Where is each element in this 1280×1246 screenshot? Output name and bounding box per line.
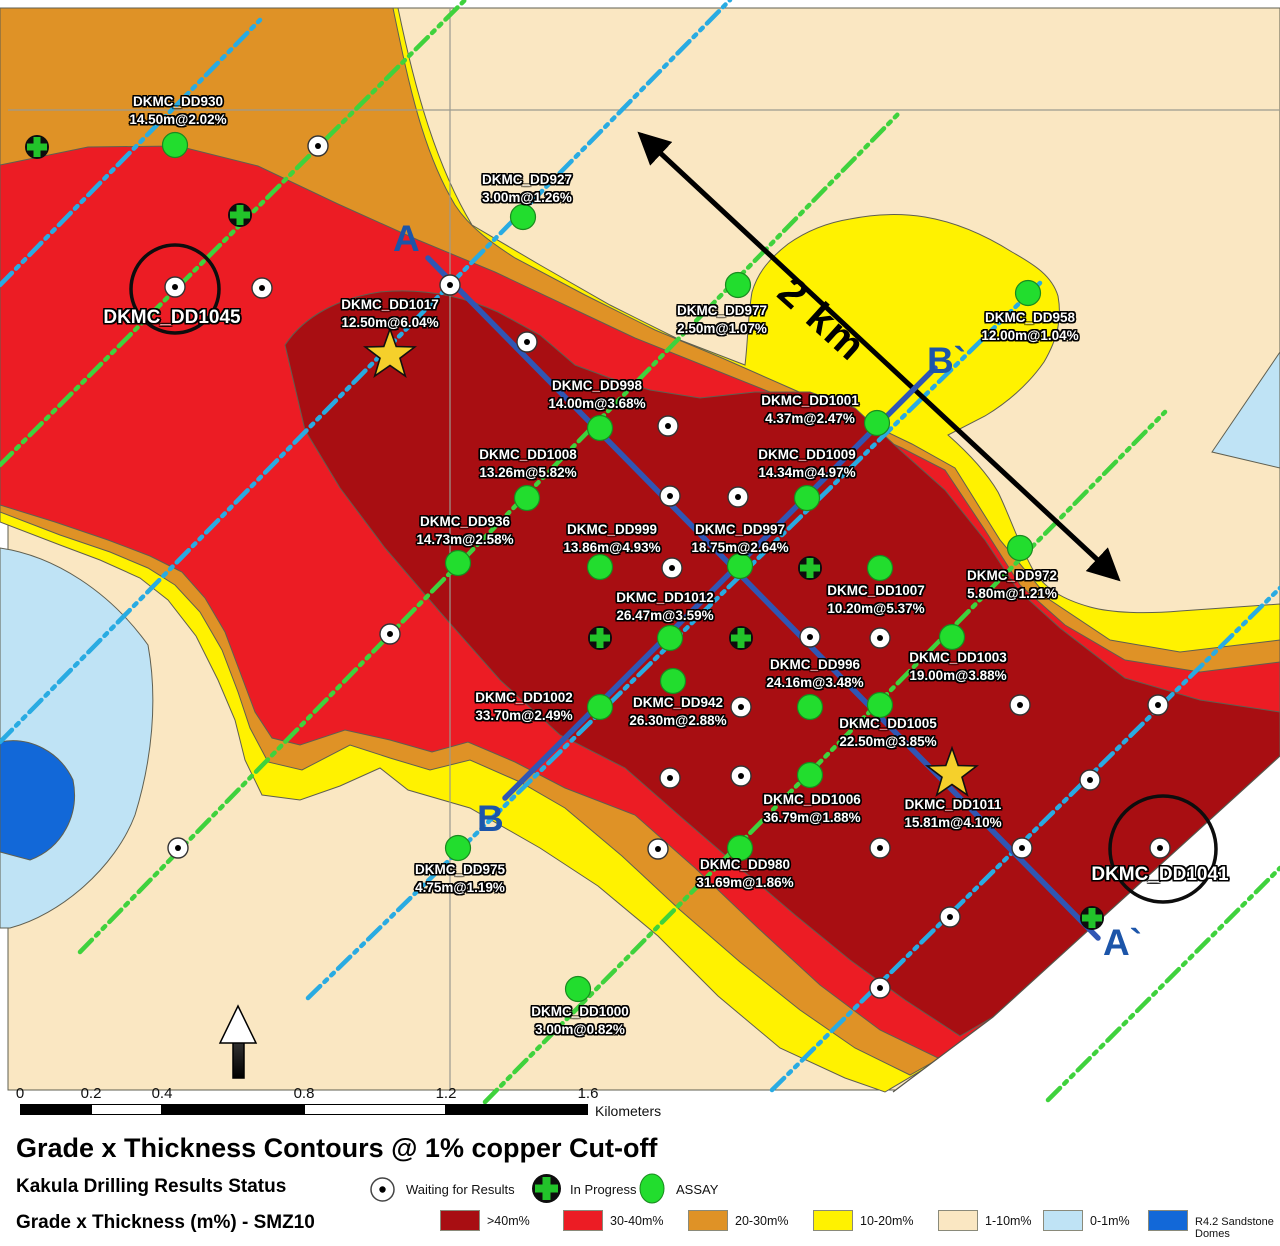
legend-gt-label: >40m% bbox=[487, 1214, 530, 1228]
hole-label: DKMC_DD99913.86m@4.93% bbox=[563, 521, 660, 556]
hole-label: DKMC_DD100319.00m@3.88% bbox=[909, 649, 1007, 684]
assay-circle bbox=[868, 556, 893, 581]
legend-gt-label: 1-10m% bbox=[985, 1214, 1032, 1228]
legend-gt-label: 30-40m% bbox=[610, 1214, 664, 1228]
scale-tick: 0 bbox=[16, 1085, 24, 1102]
assay-circle bbox=[588, 416, 613, 441]
in-progress-cross bbox=[228, 203, 252, 227]
legend-status-heading: Kakula Drilling Results Status bbox=[16, 1176, 286, 1198]
hole-label: DKMC_DD100233.70m@2.49% bbox=[475, 689, 573, 724]
hole-label: DKMC_DD9772.50m@1.07% bbox=[677, 302, 767, 337]
hole-label: DKMC_DD1041 bbox=[1091, 863, 1228, 888]
hole-label: DKMC_DD99624.16m@3.48% bbox=[766, 656, 863, 691]
hole-label: DKMC_DD100710.20m@5.37% bbox=[827, 582, 925, 617]
swatch-30-40 bbox=[563, 1210, 603, 1231]
hole-label: DKMC_DD94226.30m@2.88% bbox=[629, 694, 726, 729]
in-progress-cross bbox=[798, 556, 822, 580]
legend-gt-heading: Grade x Thickness (m%) - SMZ10 bbox=[16, 1212, 315, 1234]
legend-gt-label: 0-1m% bbox=[1090, 1214, 1130, 1228]
swatch-over-40 bbox=[440, 1210, 480, 1231]
legend-gt-label: R4.2 Sandstone Domes bbox=[1195, 1216, 1280, 1240]
page-title: Grade x Thickness Contours @ 1% copper C… bbox=[16, 1133, 657, 1164]
hole-label: DKMC_DD10003.00m@0.82% bbox=[531, 1003, 629, 1038]
hole-label: DKMC_DD101115.81m@4.10% bbox=[904, 796, 1001, 831]
scale-tick: 0.8 bbox=[294, 1085, 315, 1102]
assay-circle bbox=[726, 273, 751, 298]
hole-label: DKMC_DD100813.26m@5.82% bbox=[479, 446, 577, 481]
assay-circle bbox=[446, 836, 471, 861]
in-progress-cross bbox=[588, 626, 612, 650]
legend-gt-label: 20-30m% bbox=[735, 1214, 789, 1228]
assay-circle bbox=[511, 205, 536, 230]
assay-circle bbox=[1008, 536, 1033, 561]
assay-circle bbox=[868, 693, 893, 718]
hole-label: DKMC_DD93014.50m@2.02% bbox=[129, 93, 226, 128]
swatch-sandstone-domes bbox=[1148, 1210, 1188, 1231]
assay-circle bbox=[728, 554, 753, 579]
assay-circle bbox=[1016, 281, 1041, 306]
hole-label: DKMC_DD9754.75m@1.19% bbox=[415, 861, 505, 896]
assay-circle bbox=[588, 555, 613, 580]
assay-circle bbox=[798, 763, 823, 788]
scale-tick: 1.2 bbox=[436, 1085, 457, 1102]
hole-label: DKMC_DD99718.75m@2.64% bbox=[691, 521, 788, 556]
hole-label: DKMC_DD100914.34m@4.97% bbox=[758, 446, 856, 481]
assay-circle bbox=[588, 695, 613, 720]
kakula-map-page: DKMC_DD93014.50m@2.02% DKMC_DD9273.00m@1… bbox=[0, 0, 1280, 1246]
swatch-20-30 bbox=[688, 1210, 728, 1231]
scale-tick: 1.6 bbox=[578, 1085, 599, 1102]
legend-gt-label: 10-20m% bbox=[860, 1214, 914, 1228]
hole-label: DKMC_DD101226.47m@3.59% bbox=[616, 589, 714, 624]
hole-label: DKMC_DD98031.69m@1.86% bbox=[696, 856, 793, 891]
in-progress-cross bbox=[1080, 906, 1104, 930]
swatch-0-1 bbox=[1043, 1210, 1083, 1231]
in-progress-icon bbox=[531, 1173, 562, 1204]
assay-circle bbox=[661, 669, 686, 694]
waiting-for-results-icon bbox=[369, 1176, 396, 1203]
assay-circle bbox=[163, 133, 188, 158]
legend-status-label: In Progress bbox=[570, 1182, 636, 1197]
section-label-b-end: B` bbox=[927, 340, 966, 382]
swatch-1-10 bbox=[938, 1210, 978, 1231]
hole-label: DKMC_DD101712.50m@6.04% bbox=[341, 296, 439, 331]
section-label-b: B bbox=[477, 798, 504, 840]
hole-label: DKMC_DD100522.50m@3.85% bbox=[839, 715, 937, 750]
in-progress-cross bbox=[25, 135, 49, 159]
hole-label: DKMC_DD93614.73m@2.58% bbox=[416, 513, 513, 548]
scale-unit: Kilometers bbox=[595, 1103, 661, 1119]
assay-circle bbox=[566, 977, 591, 1002]
legend-status-label: Waiting for Results bbox=[406, 1182, 515, 1197]
hole-label: DKMC_DD9725.80m@1.21% bbox=[967, 567, 1057, 602]
hole-label: DKMC_DD100636.79m@1.88% bbox=[763, 791, 861, 826]
hole-label: DKMC_DD99814.00m@3.68% bbox=[548, 377, 645, 412]
assay-icon bbox=[638, 1172, 666, 1205]
scale-tick: 0.4 bbox=[152, 1085, 173, 1102]
assay-circle bbox=[798, 695, 823, 720]
hole-label: DKMC_DD9273.00m@1.26% bbox=[482, 171, 572, 206]
in-progress-cross bbox=[729, 626, 753, 650]
hole-label: DKMC_DD10014.37m@2.47% bbox=[761, 392, 859, 427]
assay-circle bbox=[940, 625, 965, 650]
swatch-10-20 bbox=[813, 1210, 853, 1231]
assay-circle bbox=[795, 486, 820, 511]
assay-circle bbox=[515, 486, 540, 511]
section-label-a-end: A` bbox=[1103, 922, 1142, 964]
assay-circle bbox=[658, 626, 683, 651]
legend-status-label: ASSAY bbox=[676, 1182, 718, 1197]
assay-circle bbox=[865, 411, 890, 436]
hole-label: DKMC_DD1045 bbox=[103, 306, 240, 331]
scale-tick: 0.2 bbox=[81, 1085, 102, 1102]
section-label-a: A bbox=[393, 218, 420, 260]
hole-label: DKMC_DD95812.00m@1.04% bbox=[981, 309, 1078, 344]
assay-circle bbox=[446, 551, 471, 576]
